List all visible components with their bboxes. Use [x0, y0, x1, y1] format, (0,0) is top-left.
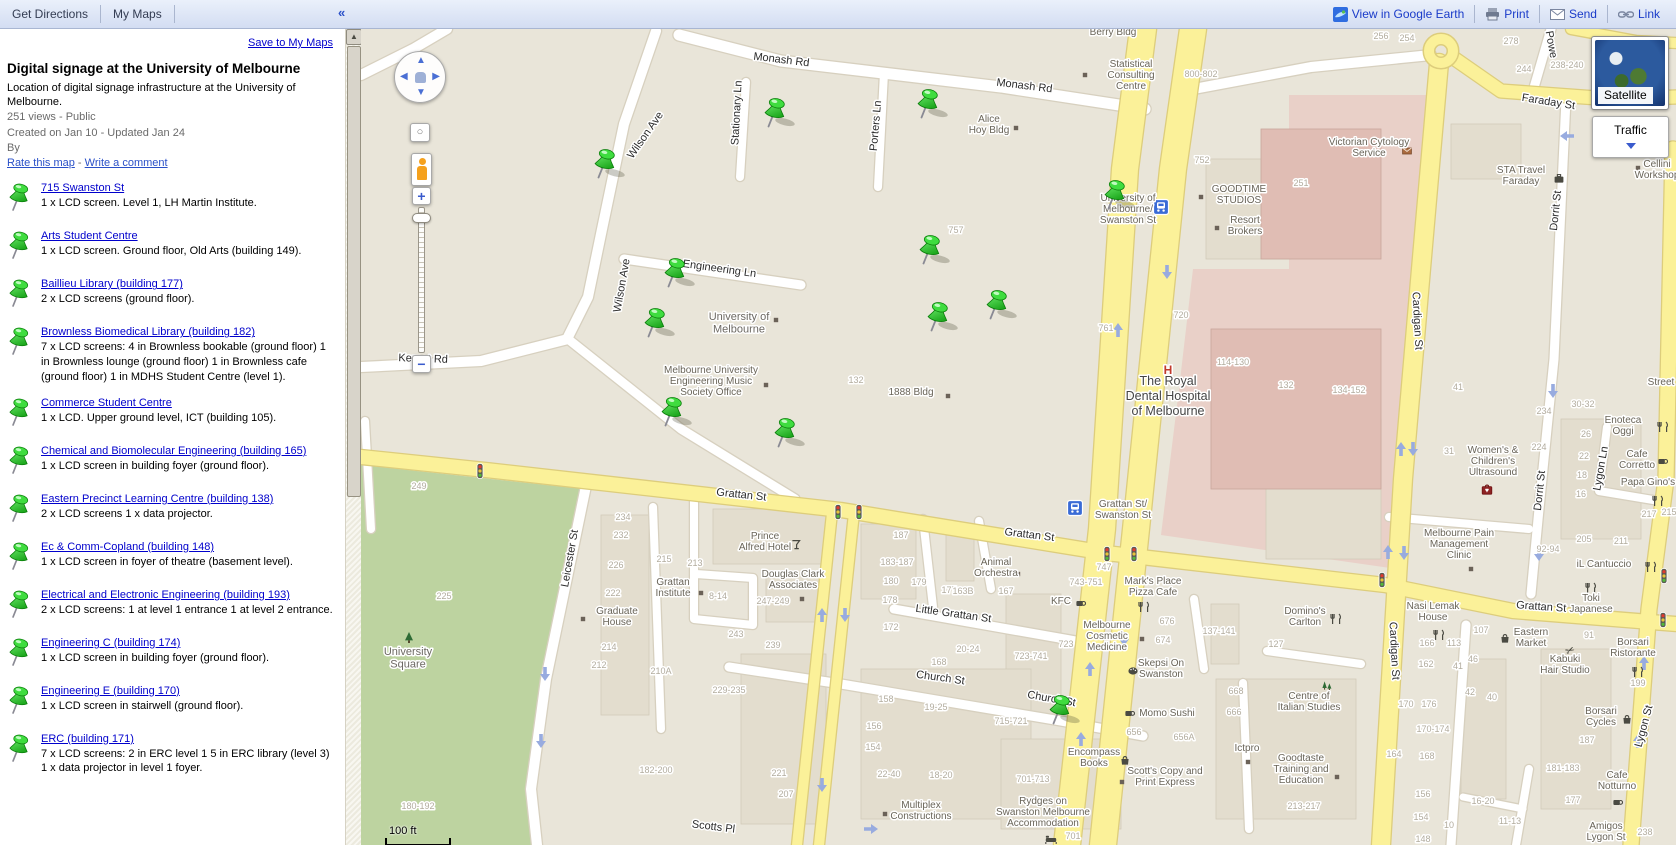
- svg-text:757: 757: [948, 225, 963, 235]
- green-pushpin-icon: [7, 732, 41, 777]
- top-toolbar: Get Directions My Maps « View in Google …: [0, 0, 1676, 29]
- svg-text:41: 41: [1453, 661, 1463, 671]
- list-item: Engineering E (building 170)1 x LCD scre…: [7, 684, 335, 721]
- svg-text:213: 213: [687, 558, 702, 568]
- map-label: 229-235: [712, 685, 745, 695]
- map-label: 22: [1579, 451, 1589, 461]
- green-pushpin-icon: [7, 492, 41, 529]
- green-pushpin-icon: [7, 325, 41, 384]
- poi-description: 1 x LCD screen. Ground floor, Old Arts (…: [41, 244, 335, 259]
- svg-text:31: 31: [1444, 446, 1454, 456]
- map-label: 256: [1373, 31, 1388, 41]
- poi-title-link[interactable]: Electrical and Electronic Engineering (b…: [41, 588, 335, 603]
- svg-text:167: 167: [998, 586, 1013, 596]
- svg-text:720: 720: [1173, 310, 1188, 320]
- link-label: View in Google Earth: [1352, 5, 1465, 23]
- map-label: Street C: [1648, 377, 1676, 388]
- svg-text:Centre of: Centre of: [1288, 691, 1329, 702]
- svg-text:Dorrit St: Dorrit St: [1532, 470, 1548, 511]
- poi-title-link[interactable]: Commerce Student Centre: [41, 396, 335, 411]
- svg-text:GOODTIME: GOODTIME: [1212, 184, 1267, 195]
- svg-text:164: 164: [1386, 749, 1401, 759]
- sidebar-scrollbar[interactable]: ▲: [345, 29, 361, 845]
- send-link[interactable]: Send: [1540, 5, 1608, 23]
- map-label: 91: [1584, 630, 1594, 640]
- svg-text:Statistical: Statistical: [1110, 59, 1153, 70]
- svg-text:221: 221: [771, 768, 786, 778]
- byline: By: [7, 141, 335, 156]
- pan-hand-icon[interactable]: [415, 72, 426, 83]
- map-label: 232: [613, 530, 628, 540]
- map-label: 213-217: [1287, 801, 1320, 811]
- svg-text:40: 40: [1487, 692, 1497, 702]
- map-label: 234: [1536, 406, 1551, 416]
- svg-text:Encompass: Encompass: [1068, 747, 1120, 758]
- svg-text:178: 178: [882, 595, 897, 605]
- svg-text:656A: 656A: [1173, 732, 1194, 742]
- svg-text:Print Express: Print Express: [1135, 777, 1194, 788]
- poi-description: 2 x LCD screens: 1 at level 1 entrance 1…: [41, 603, 335, 618]
- map-label: 41: [1453, 661, 1463, 671]
- sq-icon: [581, 617, 585, 621]
- sq-icon: [946, 394, 950, 398]
- map-label: 674: [1155, 635, 1170, 645]
- map-label: 214: [601, 642, 616, 652]
- svg-text:22-40: 22-40: [877, 769, 900, 779]
- svg-text:137-141: 137-141: [1202, 626, 1235, 636]
- poi-title-link[interactable]: Baillieu Library (building 177): [41, 277, 335, 292]
- separator: -: [75, 157, 85, 169]
- svg-text:Alice: Alice: [978, 114, 1000, 125]
- svg-text:127: 127: [1268, 639, 1283, 649]
- svg-text:701: 701: [1065, 831, 1080, 841]
- svg-text:Accommodation: Accommodation: [1007, 818, 1079, 829]
- sq-icon: [699, 591, 703, 595]
- green-pushpin-icon: [7, 684, 41, 721]
- map-label: 251: [1293, 178, 1308, 188]
- svg-text:Pizza Cafe: Pizza Cafe: [1129, 587, 1178, 598]
- svg-text:Women's &: Women's &: [1468, 445, 1519, 456]
- svg-text:132: 132: [1278, 380, 1293, 390]
- map-label: 249: [411, 481, 426, 491]
- svg-text:254: 254: [1399, 33, 1414, 43]
- svg-text:Oggi: Oggi: [1612, 426, 1633, 437]
- traffic-light-icon: [835, 505, 841, 520]
- zoom-slider-track[interactable]: [418, 207, 425, 353]
- map-label: 154: [1413, 812, 1428, 822]
- svg-text:Melbourne Pain: Melbourne Pain: [1424, 528, 1494, 539]
- map-label: 170-174: [1416, 724, 1449, 734]
- map-label: GoodtasteTraining andEducation: [1273, 753, 1328, 786]
- map-label: 278: [1503, 36, 1518, 46]
- poi-title-link[interactable]: Engineering E (building 170): [41, 684, 335, 699]
- green-pushpin-icon: [7, 277, 41, 314]
- poi-description: 2 x LCD screens (ground floor).: [41, 292, 335, 307]
- map-label: 239: [765, 640, 780, 650]
- map-label: 656A: [1173, 732, 1194, 742]
- svg-text:238: 238: [1637, 827, 1652, 837]
- transit-icon: [1154, 200, 1169, 215]
- map-label: 134-152: [1332, 385, 1365, 395]
- svg-text:656: 656: [1126, 727, 1141, 737]
- map-label: KFC: [1051, 596, 1071, 607]
- svg-text:212: 212: [591, 660, 606, 670]
- svg-text:166: 166: [1419, 638, 1434, 648]
- map-canvas[interactable]: ✂♥HMonash RdMonash RdWilson AveWilson Av…: [361, 29, 1676, 845]
- green-pushpin-icon: [7, 396, 41, 433]
- map-label: EasternMarket: [1514, 627, 1548, 649]
- pegman-icon: [419, 158, 426, 165]
- map-label: 743-751: [1069, 577, 1102, 587]
- map-label: 113: [1447, 638, 1461, 648]
- map-label: 30-32: [1571, 399, 1594, 409]
- transit-icon: [1068, 501, 1083, 516]
- poi-title-link[interactable]: Chemical and Biomolecular Engineering (b…: [41, 444, 335, 459]
- sq-icon: [1199, 195, 1203, 199]
- svg-text:Ristorante: Ristorante: [1610, 648, 1656, 659]
- poi-title-link[interactable]: 715 Swanston St: [41, 181, 335, 196]
- map-label: 22-40: [877, 769, 900, 779]
- map-label: 244: [1516, 64, 1531, 74]
- map-label: 180-192: [401, 801, 434, 811]
- map-recenter-button[interactable]: ○: [410, 123, 430, 142]
- green-pushpin-icon: [7, 229, 41, 266]
- svg-text:Institute: Institute: [655, 588, 690, 599]
- map-label: 168: [931, 657, 946, 667]
- svg-text:747: 747: [1096, 562, 1111, 572]
- svg-text:Amigos: Amigos: [1589, 821, 1622, 832]
- zoom-out-button[interactable]: −: [412, 355, 431, 373]
- map-label: 162: [1418, 659, 1433, 669]
- map-label: 676: [1159, 616, 1174, 626]
- toolbar-tabs: Get Directions My Maps: [0, 0, 175, 28]
- map-label: iL Cantuccio: [1577, 559, 1632, 570]
- svg-text:156: 156: [866, 721, 881, 731]
- save-to-my-maps-link[interactable]: Save to My Maps: [7, 37, 333, 49]
- pan-right-icon[interactable]: ▶: [432, 72, 440, 82]
- map-label: 181-183: [1546, 763, 1579, 773]
- svg-text:752: 752: [1194, 155, 1209, 165]
- svg-text:Eastern: Eastern: [1514, 627, 1548, 638]
- map-label: Scott's Copy andPrint Express: [1127, 766, 1202, 788]
- svg-text:182-200: 182-200: [639, 765, 672, 775]
- svg-text:Scott's Copy and: Scott's Copy and: [1127, 766, 1202, 777]
- svg-text:187: 187: [1579, 735, 1594, 745]
- pan-up-icon[interactable]: ▲: [416, 56, 426, 66]
- svg-text:215: 215: [656, 554, 671, 564]
- svg-text:Goodtaste: Goodtaste: [1278, 753, 1325, 764]
- traffic-label: Traffic: [1593, 117, 1668, 143]
- map-label: 107: [1473, 625, 1488, 635]
- link-link[interactable]: Link: [1608, 5, 1670, 23]
- map-label: 127: [1268, 639, 1283, 649]
- svg-text:Cellini: Cellini: [1643, 159, 1670, 170]
- map-label: MelbourneCosmeticMedicine: [1083, 620, 1131, 653]
- svg-text:Faraday: Faraday: [1503, 176, 1540, 187]
- bag-icon: [1501, 635, 1508, 643]
- poi-description: 1 x LCD. Upper ground level, ICT (buildi…: [41, 411, 335, 426]
- satellite-view-button[interactable]: Satellite: [1591, 36, 1669, 110]
- map-description: Location of digital signage infrastructu…: [7, 81, 335, 111]
- map-label: 156: [1415, 789, 1430, 799]
- map-label: 1888 Bldg: [888, 387, 933, 398]
- svg-text:The Royal: The Royal: [1140, 374, 1197, 388]
- dates-line: Created on Jan 10 - Updated Jan 24: [7, 126, 335, 141]
- traffic-light-icon: [1131, 547, 1137, 562]
- map-label: 16-20: [1471, 796, 1494, 806]
- sq-icon: [1246, 760, 1250, 764]
- sidebar-collapse-icon[interactable]: «: [338, 5, 345, 20]
- map-label: 164: [1386, 749, 1401, 759]
- svg-text:Management: Management: [1430, 539, 1489, 550]
- map-label: AmigosLygon St: [1586, 821, 1625, 843]
- map-label: STA TravelFaraday: [1497, 165, 1545, 187]
- svg-text:Cafe: Cafe: [1606, 770, 1628, 781]
- map-label: Momo Sushi: [1139, 708, 1195, 719]
- svg-text:Associates: Associates: [769, 580, 817, 591]
- list-item: Commerce Student Centre1 x LCD. Upper gr…: [7, 396, 335, 433]
- svg-text:Engineering Music: Engineering Music: [670, 376, 752, 387]
- svg-text:800-802: 800-802: [1184, 69, 1217, 79]
- zoom-in-button[interactable]: +: [412, 187, 431, 205]
- map-label: 720: [1173, 310, 1188, 320]
- svg-text:Resort: Resort: [1230, 215, 1260, 226]
- sq-icon: [1083, 73, 1087, 77]
- map-label: University ofMelbourne: [709, 311, 770, 336]
- svg-text:278: 278: [1503, 36, 1518, 46]
- svg-text:715-721: 715-721: [994, 716, 1027, 726]
- poi-title-link[interactable]: Engineering C (building 174): [41, 636, 335, 651]
- zoom-slider-handle[interactable]: [412, 213, 431, 223]
- svg-text:213-217: 213-217: [1287, 801, 1320, 811]
- traffic-button[interactable]: Traffic: [1592, 116, 1669, 158]
- svg-text:KFC: KFC: [1051, 596, 1071, 607]
- svg-text:♥: ♥: [1485, 488, 1489, 495]
- link-label: Print: [1504, 5, 1529, 23]
- map-label: Women's &Children'sUltrasound: [1468, 445, 1519, 478]
- hospital-building-footprint: [1211, 329, 1381, 489]
- svg-text:House: House: [1419, 612, 1448, 623]
- traffic-light-icon: [856, 505, 862, 520]
- svg-text:Books: Books: [1080, 758, 1108, 769]
- svg-text:22: 22: [1579, 451, 1589, 461]
- svg-text:Grattan: Grattan: [656, 577, 689, 588]
- list-item: Engineering C (building 174)1 x LCD scre…: [7, 636, 335, 673]
- svg-text:Training and: Training and: [1273, 764, 1328, 775]
- poi-title-link[interactable]: Brownless Biomedical Library (building 1…: [41, 325, 335, 340]
- svg-text:46: 46: [1468, 654, 1478, 664]
- svg-text:Skepsi On: Skepsi On: [1138, 658, 1184, 669]
- svg-text:701-713: 701-713: [1016, 774, 1049, 784]
- svg-text:187: 187: [893, 530, 908, 540]
- svg-text:of Melbourne: of Melbourne: [1132, 404, 1205, 418]
- svg-text:Swanston: Swanston: [1139, 669, 1183, 680]
- svg-text:Cafe: Cafe: [1626, 449, 1648, 460]
- pan-left-icon[interactable]: ◀: [400, 72, 408, 82]
- svg-text:168: 168: [1419, 751, 1434, 761]
- svg-text:Dental Hospital: Dental Hospital: [1126, 389, 1211, 403]
- map-label: 8-14: [709, 591, 727, 601]
- pan-down-icon[interactable]: ▼: [416, 88, 426, 98]
- svg-text:42: 42: [1465, 687, 1475, 697]
- svg-text:163B: 163B: [952, 586, 973, 596]
- map-label: Melbourne UniversityEngineering MusicSoc…: [664, 365, 758, 398]
- list-item: Arts Student Centre1 x LCD screen. Groun…: [7, 229, 335, 266]
- poi-title-link[interactable]: Ec & Comm-Copland (building 148): [41, 540, 335, 555]
- list-item: Eastern Precinct Learning Centre (buildi…: [7, 492, 335, 529]
- svg-text:113: 113: [1447, 638, 1461, 648]
- traffic-light-icon: [477, 464, 483, 479]
- green-pushpin-icon: [7, 540, 41, 577]
- roundabout: [1429, 39, 1453, 63]
- svg-text:215: 215: [1661, 507, 1676, 517]
- svg-text:91: 91: [1584, 630, 1594, 640]
- svg-text:19-25: 19-25: [924, 702, 947, 712]
- map-label: 225: [436, 591, 451, 601]
- svg-text:183-187: 183-187: [880, 557, 913, 567]
- svg-text:244: 244: [1516, 64, 1531, 74]
- scrollbar-up-button[interactable]: ▲: [346, 29, 362, 45]
- map-label: 701-713: [1016, 774, 1049, 784]
- map-label: 18-20: [929, 770, 952, 780]
- map-label: Papa Gino's: [1621, 477, 1675, 488]
- svg-text:Service: Service: [1352, 148, 1386, 159]
- map-label: 701: [1065, 831, 1080, 841]
- one-way-arrow-icon: [864, 824, 878, 834]
- svg-text:723-741: 723-741: [1014, 651, 1047, 661]
- svg-text:Borsari: Borsari: [1585, 706, 1617, 717]
- cup-icon: [1613, 800, 1622, 805]
- map-label: 207: [778, 789, 793, 799]
- svg-text:STA Travel: STA Travel: [1497, 165, 1545, 176]
- map-label: 199: [1630, 678, 1645, 688]
- map-label: 132: [1278, 380, 1293, 390]
- map-label: 656: [1126, 727, 1141, 737]
- print-link[interactable]: Print: [1475, 5, 1540, 23]
- svg-text:11-13: 11-13: [1499, 816, 1521, 826]
- svg-text:181-183: 181-183: [1546, 763, 1579, 773]
- map-label: UniversitySquare: [384, 646, 433, 671]
- svg-text:761: 761: [1098, 323, 1113, 333]
- svg-text:41: 41: [1453, 382, 1463, 392]
- map-label: 215: [656, 554, 671, 564]
- map-label: 723: [1058, 639, 1073, 649]
- svg-text:Toki: Toki: [1582, 593, 1600, 604]
- svg-text:243: 243: [728, 629, 743, 639]
- svg-text:Street C: Street C: [1648, 377, 1676, 388]
- svg-text:House: House: [603, 617, 632, 628]
- svg-text:134-152: 134-152: [1332, 385, 1365, 395]
- svg-text:Children's: Children's: [1471, 456, 1515, 467]
- poi-title-link[interactable]: ERC (building 171): [41, 732, 335, 747]
- map-label: 183-187: [880, 557, 913, 567]
- map-label: 800-802: [1184, 69, 1217, 79]
- map-label: 182-200: [639, 765, 672, 775]
- svg-text:170: 170: [1398, 699, 1413, 709]
- traffic-light-icon: [1104, 547, 1110, 562]
- svg-text:Domino's: Domino's: [1284, 606, 1325, 617]
- map-label: 172: [883, 622, 898, 632]
- svg-text:Melbourne University: Melbourne University: [664, 365, 758, 376]
- svg-text:26: 26: [1581, 429, 1591, 439]
- svg-text:30-32: 30-32: [1571, 399, 1594, 409]
- map-pan-control[interactable]: ▲ ▼ ◀ ▶: [394, 51, 446, 103]
- svg-text:Workshop: Workshop: [1635, 170, 1676, 181]
- map-graphics: ✂♥HMonash RdMonash RdWilson AveWilson Av…: [361, 29, 1676, 845]
- svg-text:Enoteca: Enoteca: [1605, 415, 1642, 426]
- sq-icon: [764, 383, 768, 387]
- street-view-pegman[interactable]: [411, 153, 432, 186]
- svg-text:Ictpro: Ictpro: [1234, 743, 1259, 754]
- svg-text:Grattan St/: Grattan St/: [1099, 499, 1148, 510]
- sq-icon: [1014, 126, 1018, 130]
- svg-text:STUDIOS: STUDIOS: [1217, 195, 1262, 206]
- write-a-comment-link[interactable]: Write a comment: [85, 157, 168, 169]
- map-scale: 100 ft: [385, 825, 451, 845]
- scrollbar-thumb[interactable]: [347, 46, 361, 497]
- list-item: Brownless Biomedical Library (building 1…: [7, 325, 335, 384]
- scale-bar: [385, 838, 451, 845]
- poi-title-link[interactable]: Arts Student Centre: [41, 229, 335, 244]
- svg-text:107: 107: [1473, 625, 1488, 635]
- view-in-google-earth-link[interactable]: View in Google Earth: [1323, 5, 1476, 23]
- svg-text:205: 205: [1576, 534, 1591, 544]
- svg-text:251: 251: [1293, 178, 1308, 188]
- map-label: 179: [911, 577, 926, 587]
- poi-description: 7 x LCD screens: 2 in ERC level 1 5 in E…: [41, 747, 335, 777]
- map-label: Dorrit St: [1532, 470, 1548, 511]
- svg-text:247-249: 247-249: [756, 596, 789, 606]
- svg-text:249: 249: [411, 481, 426, 491]
- rate-this-map-link[interactable]: Rate this map: [7, 157, 75, 169]
- map-label: 747: [1096, 562, 1111, 572]
- tab-get-directions[interactable]: Get Directions: [0, 5, 101, 23]
- poi-title-link[interactable]: Eastern Precinct Learning Centre (buildi…: [41, 492, 335, 507]
- map-label: 177: [1565, 795, 1580, 805]
- map-label: 211: [1614, 536, 1628, 546]
- map-label: 137-141: [1202, 626, 1235, 636]
- map-label: Wilson Ave: [611, 258, 632, 313]
- map-label: 178: [882, 595, 897, 605]
- map-label: 10: [1444, 820, 1454, 830]
- map-label: 222: [605, 588, 620, 598]
- map-label: 19-25: [924, 702, 947, 712]
- map-label: 41: [1453, 382, 1463, 392]
- tab-my-maps[interactable]: My Maps: [101, 5, 175, 23]
- svg-text:Market: Market: [1516, 638, 1547, 649]
- svg-text:Japanese: Japanese: [1569, 604, 1613, 615]
- map-label: 210A: [650, 666, 671, 676]
- map-label: ResortBrokers: [1228, 215, 1262, 237]
- list-item: Electrical and Electronic Engineering (b…: [7, 588, 335, 625]
- svg-text:18-20: 18-20: [929, 770, 952, 780]
- svg-text:Rydges on: Rydges on: [1019, 796, 1067, 807]
- svg-text:Corretto: Corretto: [1619, 460, 1656, 471]
- traffic-light-icon: [1661, 569, 1667, 584]
- map-label: Domino'sCarlton: [1284, 606, 1325, 628]
- map-label: Scotts Pl: [691, 818, 736, 835]
- svg-text:Carlton: Carlton: [1289, 617, 1321, 628]
- svg-text:Swanston St: Swanston St: [1095, 510, 1151, 521]
- svg-text:Clinic: Clinic: [1447, 550, 1471, 561]
- svg-text:723: 723: [1058, 639, 1073, 649]
- poi-list: 715 Swanston St1 x LCD screen. Level 1, …: [7, 181, 335, 776]
- map-label: 154: [865, 742, 880, 752]
- map-label: Melbourne PainManagementClinic: [1424, 528, 1494, 561]
- map-label: 114-130: [1217, 357, 1249, 367]
- svg-text:217: 217: [1641, 509, 1656, 519]
- list-item: Chemical and Biomolecular Engineering (b…: [7, 444, 335, 481]
